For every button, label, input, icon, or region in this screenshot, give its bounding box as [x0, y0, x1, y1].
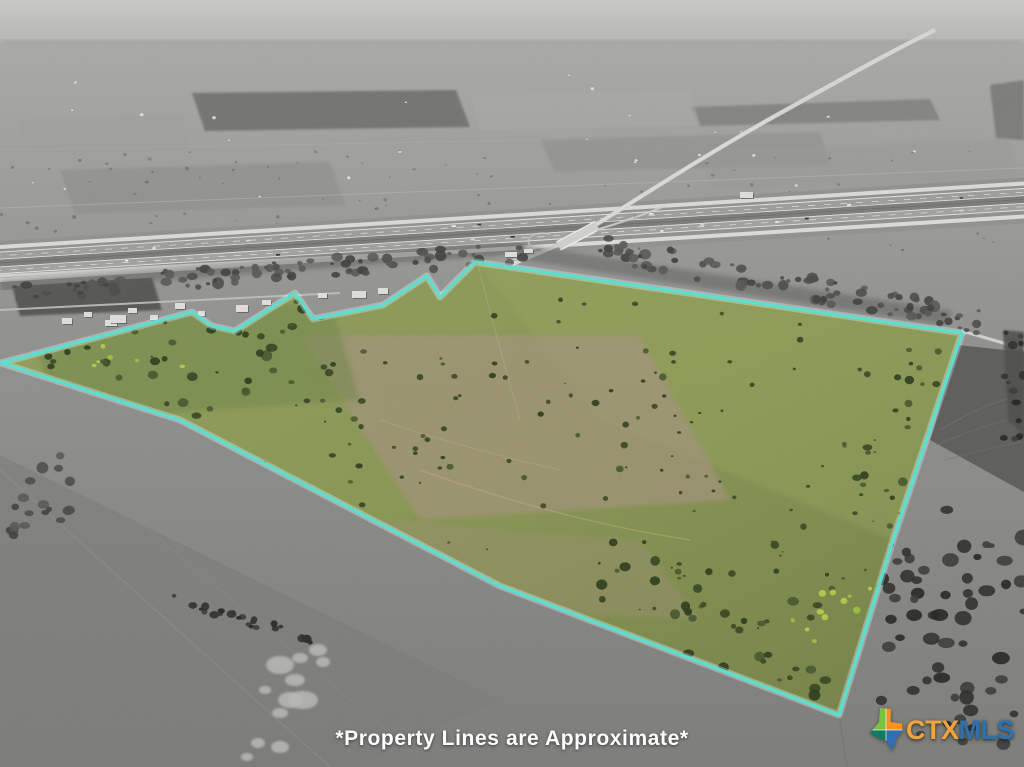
aerial-photo: *Property Lines are Approximate* CTXMLS — [0, 0, 1024, 767]
texas-state-icon — [868, 707, 904, 753]
film-grain-overlay — [0, 0, 1024, 767]
brand-text-ctx: CTX — [906, 717, 959, 744]
ctxmls-watermark: CTXMLS — [868, 707, 1014, 753]
brand-text-mls: MLS — [959, 717, 1015, 744]
aerial-scene — [0, 0, 1024, 767]
